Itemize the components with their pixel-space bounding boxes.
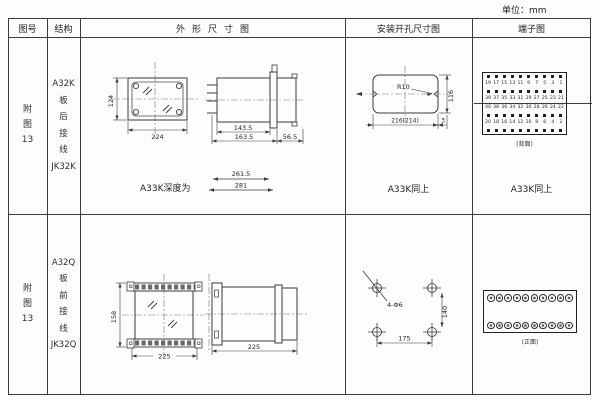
row1-cutout-width-dim: 216(214) [391, 118, 419, 125]
row1-struct-char1: 板 [59, 97, 68, 106]
row2-holes-dim: 4-Φ6 [387, 301, 403, 309]
row2-model-label: A32Q [52, 259, 75, 268]
header-terminal: 端子图 [472, 22, 591, 35]
row1-struct-char3: 接 [59, 130, 68, 139]
row1-terminal-dots-1 [483, 75, 566, 78]
header-outline: 外形尺寸图 [80, 22, 345, 35]
row2-terminal-caption: (正面) [483, 337, 577, 346]
table-row-divider [8, 214, 591, 215]
row1-terminal-dots-2 [483, 90, 566, 93]
row1-depth-alt2-dim: 281 [235, 182, 247, 190]
row1-mounting-same-note: A33K同上 [345, 182, 472, 195]
row2-terminal-body [483, 290, 577, 333]
row2-front-width-dim: 225 [158, 353, 170, 361]
row1-terminal-midline [474, 103, 592, 104]
table-vline-2 [80, 18, 81, 395]
row1-terminal-numbers-3: 40383634323028262422 [483, 106, 566, 111]
row2-struct-char1: 板 [59, 275, 68, 284]
row1-fig-char2: 图 [23, 121, 32, 130]
row1-mounting-drawing: R10 116 216(214) 3 [352, 62, 468, 134]
table-header-line [8, 37, 591, 38]
row1-struct-char4: 线 [59, 146, 68, 155]
row2-jk-label: JK32Q [51, 341, 77, 350]
row2-struct-char2: 前 [59, 292, 68, 301]
row2-struct-char3: 接 [59, 308, 68, 317]
row1-structure-cell: A32K 板 后 接 线 JK32K [47, 37, 80, 214]
row2-front-view-drawing: 158 225 [108, 268, 208, 363]
header-structure: 结构 [47, 22, 80, 35]
row1-fig-char1: 附 [23, 106, 32, 115]
row1-terminal-drawing: 191715131197531 39373533312927252321 403… [478, 66, 590, 151]
row2-fig-char3: 13 [22, 315, 33, 324]
row2-side-view-drawing: 225 [203, 270, 313, 358]
row2-struct-char4: 线 [59, 325, 68, 334]
row1-side-view-drawing: 143.5 163.5 56.5 [203, 55, 308, 150]
row1-flange-depth-dim: 56.5 [283, 133, 297, 141]
row1-depth-total-dim: 163.5 [235, 133, 254, 141]
row1-figure-no-cell: 附 图 13 [8, 37, 47, 214]
row1-terminal-dots-3 [483, 114, 566, 117]
table-vline-3 [345, 18, 346, 395]
row2-hole-spacing-v-dim: 140 [441, 306, 449, 318]
table-vline-4 [472, 18, 473, 395]
unit-note: 单位：mm [502, 3, 547, 16]
row1-terminal-numbers-1: 191715131197531 [483, 82, 566, 87]
row1-jk-label: JK32K [51, 163, 75, 172]
row2-figure-no-cell: 附 图 13 [8, 214, 47, 394]
spec-sheet-page: 单位：mm 图号 结构 外形尺寸图 安装开孔尺寸图 端子图 附 图 13 A32… [0, 0, 600, 400]
row2-terminal-circles-2 [484, 322, 576, 330]
row1-terminal-numbers-4: 2018161412108642 [483, 121, 566, 126]
row2-fig-char2: 图 [23, 300, 32, 309]
row2-hole-spacing-h-dim: 175 [398, 335, 410, 343]
row1-model-label: A32K [52, 80, 74, 89]
row1-edge-gap-dim: 3 [441, 118, 445, 125]
row1-terminal-caption: (背面) [482, 139, 567, 148]
row1-cutout-height-dim: 116 [447, 90, 455, 102]
row1-front-width-dim: 224 [151, 133, 163, 141]
row1-depth-body-dim: 143.5 [234, 124, 253, 132]
row2-terminal-circles-1 [484, 294, 576, 302]
row2-front-height-dim: 158 [110, 311, 118, 323]
row1-terminal-numbers-2: 39373533312927252321 [483, 97, 566, 102]
row1-front-view-drawing: 124 224 [103, 58, 203, 148]
row2-depth-dim: 225 [248, 343, 260, 351]
row2-fig-char1: 附 [23, 285, 32, 294]
row1-depth-alt1-dim: 261.5 [232, 170, 251, 178]
row1-terminal-same-note: A33K同上 [472, 182, 591, 195]
row2-mounting-drawing: 4-Φ6 140 175 [356, 260, 461, 358]
row1-terminal-dots-4 [483, 129, 566, 132]
row1-fig-char3: 13 [22, 136, 33, 145]
row1-corner-radius-dim: R10 [397, 83, 410, 91]
header-mounting: 安装开孔尺寸图 [345, 22, 472, 35]
row1-front-height-dim: 124 [107, 95, 115, 107]
row2-structure-cell: A32Q 板 前 接 线 JK32Q [47, 214, 80, 394]
row1-depth-alt-dims: 261.5 281 [205, 168, 300, 198]
row1-depth-note: A33K深度为 [140, 181, 191, 194]
row1-struct-char2: 后 [59, 113, 68, 122]
header-figure-no: 图号 [8, 22, 47, 35]
row2-terminal-drawing: (正面) [480, 286, 590, 348]
